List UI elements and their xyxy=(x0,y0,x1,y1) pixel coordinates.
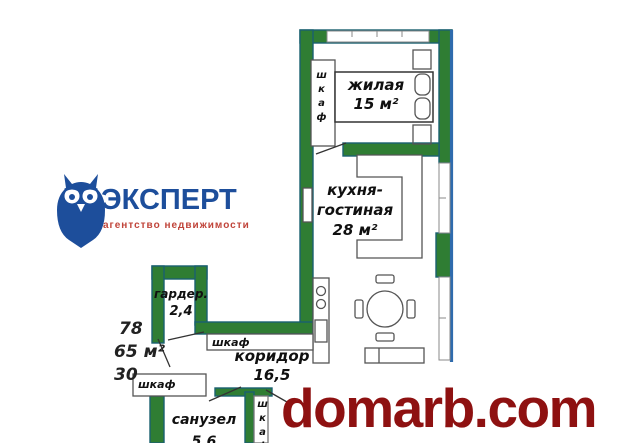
room-name-bathroom: санузел xyxy=(164,409,244,431)
room-label-living: жилая 15 м² xyxy=(338,76,414,114)
figure-line-2: 65 м² xyxy=(114,341,165,364)
owl-logo-icon xyxy=(55,170,107,248)
figures-block: 78 65 м² 30 xyxy=(114,318,165,387)
room-name-living: жилая xyxy=(338,76,414,95)
figure-line-3: 30 xyxy=(114,364,165,387)
room-label-bathroom: санузел 5,6 xyxy=(164,409,244,443)
room-area-kitchen: 28 м² xyxy=(312,220,398,240)
room-name-kitchen-1: кухня- xyxy=(312,180,398,200)
logo: ЭКСПЕРТ агентство недвижимости xyxy=(55,168,265,243)
room-label-wardrobe: гардер. 2,4 xyxy=(152,286,210,320)
closet-label-bathroom: шкаф xyxy=(256,399,268,443)
watermark-text: domarb.com xyxy=(281,376,596,440)
room-name-corridor: коридор xyxy=(232,347,312,366)
logo-title: ЭКСПЕРТ xyxy=(101,184,237,217)
closet-label-bedroom: шкаф xyxy=(315,70,327,146)
room-name-wardrobe: гардер. xyxy=(152,286,210,303)
figure-line-1: 78 xyxy=(119,318,165,341)
room-area-living: 15 м² xyxy=(338,95,414,114)
room-label-kitchen: кухня- гостиная 28 м² xyxy=(312,180,398,240)
room-area-bathroom: 5,6 xyxy=(164,431,244,443)
closet-label-hallway: шкаф xyxy=(212,336,262,349)
logo-tagline: агентство недвижимости xyxy=(103,220,250,231)
room-name-kitchen-2: гостиная xyxy=(312,200,398,220)
floorplan-image: жилая 15 м² кухня- гостиная 28 м² гардер… xyxy=(0,0,630,443)
